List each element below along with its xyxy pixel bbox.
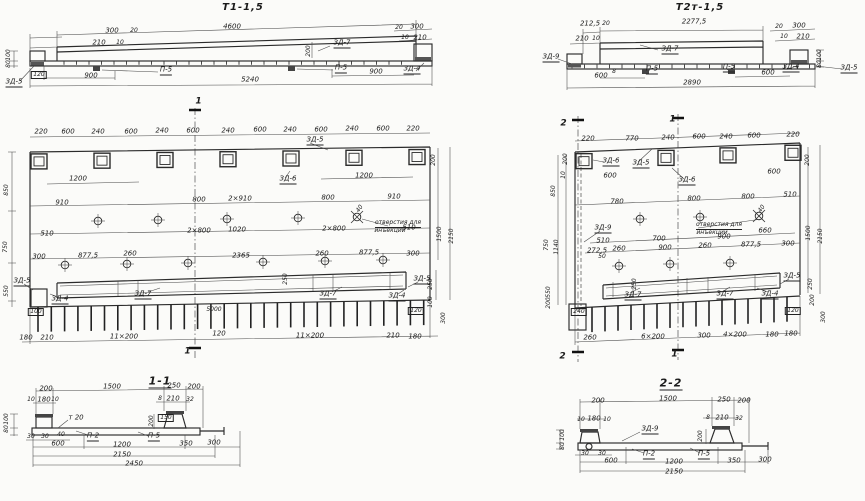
part-label: ЗД-5 — [307, 137, 324, 146]
dim-label: 2150 — [113, 452, 131, 459]
dim-label: 800 — [741, 194, 754, 201]
dim-label: 260 — [583, 335, 596, 342]
part-label: ЗД-6 — [280, 176, 297, 185]
note-label: инъекции — [374, 228, 405, 234]
dim-label: 550 — [546, 286, 552, 297]
dim-label: 780 — [610, 199, 623, 206]
view-title-t2: Т2т-1,5 — [676, 3, 724, 13]
dim-label: 900 — [717, 234, 730, 241]
dim-label: 2365 — [232, 253, 250, 260]
dim-label: 300 — [406, 251, 419, 258]
dim-label: 180 — [19, 335, 32, 342]
dim-label: 100 — [28, 308, 44, 316]
dim-label: 4600 — [223, 24, 241, 31]
dim-label: 510 — [596, 238, 609, 245]
dim-label: 2×800 — [187, 228, 211, 235]
part-label: ЗД-5 — [784, 273, 801, 282]
dim-label: 877,5 — [359, 250, 379, 257]
dim-label: 2×910 — [228, 196, 252, 203]
dim-label: 210 — [796, 34, 809, 41]
dim-label: 1500 — [437, 226, 443, 241]
thickness-label: т 20 — [68, 415, 83, 422]
dim-label: 1140 — [554, 239, 560, 254]
dim-label: 600 — [186, 128, 199, 135]
dim-label: 11×200 — [296, 333, 324, 340]
dim-label: 2890 — [683, 80, 701, 87]
part-label: ЗД-9 — [642, 426, 659, 435]
dim-label: 900 — [369, 69, 382, 76]
section-mark-1: 1 — [195, 98, 202, 107]
dim-label: 180 — [784, 331, 797, 338]
part-label: ЗД-9 — [543, 54, 560, 63]
part-label: ЗД-5 — [14, 278, 31, 287]
dim-label: 240 — [345, 126, 358, 133]
dim-label: 2450 — [125, 461, 143, 468]
dim-label: 8 — [612, 69, 616, 75]
dim-label: 200 — [563, 153, 569, 164]
dim-label: 100 — [428, 296, 434, 307]
part-label: П-2 — [643, 451, 655, 460]
dim-label: 800 — [321, 195, 334, 202]
view-title-t1: Т1-1,5 — [222, 3, 264, 13]
dim-label: 10 — [401, 35, 409, 41]
dim-label: 10 — [592, 36, 600, 42]
dim-label: 180 — [765, 332, 778, 339]
dim-label: 600 — [603, 173, 616, 180]
view-title-2-2: 2-2 — [660, 378, 683, 391]
dim-label: 10 — [27, 397, 35, 403]
dim-label: 40 — [355, 204, 364, 214]
dim-label: 600 — [604, 458, 617, 465]
dim-label: 220 — [34, 129, 47, 136]
part-label: ЗД-6 — [679, 177, 696, 186]
dim-label: 11×200 — [110, 334, 138, 341]
dim-label: 750 — [3, 241, 9, 252]
dim-label: 210 — [92, 40, 105, 47]
blueprint-sheet: Т1-1,530020210101008046002030010210200ЗД… — [0, 0, 865, 501]
dim-label: 260 — [123, 251, 136, 258]
dim-label: 10 — [577, 417, 585, 423]
dim-label: 20 — [130, 28, 138, 34]
dim-label: 600 — [594, 73, 607, 80]
dim-label: 510 — [40, 231, 53, 238]
dim-label: 200 — [149, 415, 155, 426]
dim-label: 200 — [431, 154, 437, 165]
dim-label: 910 — [387, 194, 400, 201]
dim-label: 2150 — [665, 469, 683, 476]
dim-label: 910 — [55, 200, 68, 207]
dim-label: 210 — [386, 333, 399, 340]
dim-label: 200 — [187, 384, 200, 391]
dim-label: 350 — [179, 441, 192, 448]
dim-label: 80 — [560, 442, 566, 450]
dim-label: 900 — [84, 73, 97, 80]
dim-label: 200 — [737, 398, 750, 405]
dim-label: 1020 — [228, 227, 246, 234]
part-label: ЗД-4 — [404, 66, 421, 75]
part-label: П-5 — [698, 451, 710, 460]
dim-label: 600 — [51, 441, 64, 448]
dim-label: 32 — [735, 416, 743, 422]
dim-label: 180 — [408, 334, 421, 341]
dim-label: 600 — [747, 133, 760, 140]
dim-label: 200 — [805, 154, 811, 165]
dim-label: 300 — [410, 24, 423, 31]
dim-label: 1500 — [806, 225, 812, 240]
part-label: ЗД-7 — [135, 291, 152, 300]
dim-label: 900 — [658, 245, 671, 252]
dim-label: 1500 — [103, 384, 121, 391]
dim-label: 220 — [786, 132, 799, 139]
dim-label: 40 — [57, 432, 65, 438]
dim-label: 300 — [697, 333, 710, 340]
dim-label: 240 — [221, 128, 234, 135]
dim-label: 8 — [158, 396, 162, 402]
dim-label: 300 — [32, 254, 45, 261]
dim-label: 600 — [376, 126, 389, 133]
dim-label: 850 — [4, 184, 10, 195]
dim-label: 2277,5 — [682, 19, 707, 26]
part-label: ЗД-4 — [52, 296, 69, 305]
dim-label: 600 — [124, 129, 137, 136]
dim-label: 10 — [603, 417, 611, 423]
dim-label: 30 — [581, 451, 589, 457]
dim-label: 210 — [40, 335, 53, 342]
dim-label: 700 — [652, 236, 665, 243]
dim-label: 20 — [395, 25, 403, 31]
dim-label: 250 — [808, 278, 814, 289]
part-label: ЗД-7 — [625, 292, 642, 301]
dim-label: 240 — [661, 135, 674, 142]
dim-label: 1200 — [113, 442, 131, 449]
part-label: ЗД-7 — [334, 40, 351, 49]
part-label: ЗД-5 — [841, 65, 858, 74]
dim-label: 120 — [785, 307, 801, 315]
dim-label: 250 — [717, 397, 730, 404]
dim-label: 220 — [581, 136, 594, 143]
dim-label: 600 — [767, 169, 780, 176]
part-label: ЗД-4 — [762, 291, 779, 300]
section-mark-2: 2 — [560, 120, 567, 129]
dim-label: 120 — [408, 307, 424, 315]
dim-label: 80 — [6, 60, 12, 68]
part-label: П-5 — [723, 64, 735, 73]
dim-label: 210 — [413, 35, 426, 42]
dim-label: 180 — [37, 397, 50, 404]
dim-label: 250 — [632, 278, 638, 289]
dim-label: 800 — [192, 197, 205, 204]
dim-label: 200 — [546, 297, 552, 308]
part-label: ЗД-7 — [662, 46, 679, 55]
dim-label: 200 — [591, 398, 604, 405]
dim-label: 200 — [810, 294, 816, 305]
dim-label: 550 — [4, 285, 10, 296]
section-mark-1: 1 — [669, 116, 676, 125]
dim-label: 20 — [602, 21, 610, 27]
dim-label: 120 — [31, 71, 47, 79]
dim-label: 10 — [561, 171, 567, 179]
dim-label: 510 — [783, 192, 796, 199]
dim-label: 180 — [587, 416, 600, 423]
dim-label: 350 — [727, 458, 740, 465]
dim-label: 240 — [91, 129, 104, 136]
dim-label: 510 — [402, 225, 415, 232]
dim-label: 50 — [598, 254, 606, 260]
annotation-layer: Т1-1,530020210101008046002030010210200ЗД… — [0, 0, 865, 501]
dim-label: 1200 — [69, 176, 87, 183]
part-label: П-2 — [87, 433, 99, 442]
dim-label: 240 — [571, 308, 587, 316]
dim-label: 600 — [314, 127, 327, 134]
dim-label: 30 — [41, 434, 49, 440]
dim-label: 877,5 — [78, 253, 98, 260]
dim-label: 300 — [207, 440, 220, 447]
dim-label: 80 — [817, 60, 823, 68]
dim-label: 200 — [39, 386, 52, 393]
dim-label: 2×800 — [322, 226, 346, 233]
dim-label: 300 — [821, 311, 827, 322]
dim-label: 1500 — [659, 396, 677, 403]
dim-label: 300 — [441, 312, 447, 323]
dim-label: 800 — [687, 196, 700, 203]
dim-label: 210 — [166, 396, 179, 403]
dim-label: 260 — [315, 251, 328, 258]
dim-label: 250 — [428, 278, 434, 289]
dim-label: 120 — [212, 331, 225, 338]
dim-label: 30 — [27, 434, 35, 440]
dim-label: 1200 — [355, 173, 373, 180]
dim-label: 10 — [51, 397, 59, 403]
dim-label: 260 — [698, 243, 711, 250]
part-label: П-5 — [160, 67, 172, 76]
dim-label: 4×200 — [723, 332, 747, 339]
dim-label: 10 — [116, 40, 124, 46]
part-label: ЗД-7 — [717, 291, 734, 300]
dim-label: 300 — [792, 23, 805, 30]
dim-label: 40 — [757, 204, 766, 214]
part-label: П-5 — [148, 433, 160, 442]
section-mark-2: 2 — [559, 353, 566, 362]
section-mark-1: 1 — [184, 348, 191, 357]
dim-label: 850 — [551, 185, 557, 196]
part-label: ЗД-6 — [603, 158, 620, 167]
dim-label: 250 — [283, 273, 289, 284]
dim-label: 300 — [781, 241, 794, 248]
dim-label: 600 — [253, 127, 266, 134]
dim-label: 770 — [625, 136, 638, 143]
dim-label: 150 — [158, 414, 174, 422]
dim-label: 877,5 — [741, 242, 761, 249]
dim-label: 240 — [155, 128, 168, 135]
part-label: П-5 — [335, 65, 347, 74]
dim-label: 5240 — [241, 77, 259, 84]
part-label: ЗД-9 — [595, 225, 612, 234]
dim-label: 210 — [575, 36, 588, 43]
dim-label: 240 — [719, 134, 732, 141]
dim-label: 600 — [61, 129, 74, 136]
section-mark-1: 1 — [671, 351, 678, 360]
dim-label: 260 — [612, 246, 625, 253]
dim-label: 200 — [306, 45, 312, 56]
dim-label: 6×200 — [641, 334, 665, 341]
dim-label: 100 — [560, 429, 566, 440]
part-label: П-5 — [646, 66, 658, 75]
dim-label: 5000 — [206, 307, 221, 313]
dim-label: 1200 — [665, 459, 683, 466]
dim-label: 300 — [758, 457, 771, 464]
dim-label: 240 — [283, 127, 296, 134]
dim-label: 200 — [698, 430, 704, 441]
part-label: ЗД-5 — [6, 79, 23, 88]
dim-label: 80 — [4, 425, 10, 433]
dim-label: 600 — [692, 134, 705, 141]
dim-label: 20 — [775, 24, 783, 30]
dim-label: 250 — [167, 383, 180, 390]
dim-label: 100 — [4, 413, 10, 424]
part-label: ЗД-4 — [389, 293, 406, 302]
dim-label: 220 — [406, 126, 419, 133]
part-label: ЗД-5 — [633, 160, 650, 169]
dim-label: 2150 — [449, 228, 455, 243]
dim-label: 8 — [706, 415, 710, 421]
part-label: ЗД-7 — [320, 291, 337, 300]
dim-label: 660 — [758, 228, 771, 235]
dim-label: 10 — [780, 34, 788, 40]
dim-label: 2150 — [818, 228, 824, 243]
dim-label: 300 — [105, 28, 118, 35]
dim-label: 32 — [186, 397, 194, 403]
dim-label: 600 — [761, 70, 774, 77]
dim-label: 750 — [544, 239, 550, 250]
part-label: ЗД-4 — [783, 64, 800, 73]
dim-label: 212,5 — [580, 21, 600, 28]
dim-label: 210 — [715, 415, 728, 422]
